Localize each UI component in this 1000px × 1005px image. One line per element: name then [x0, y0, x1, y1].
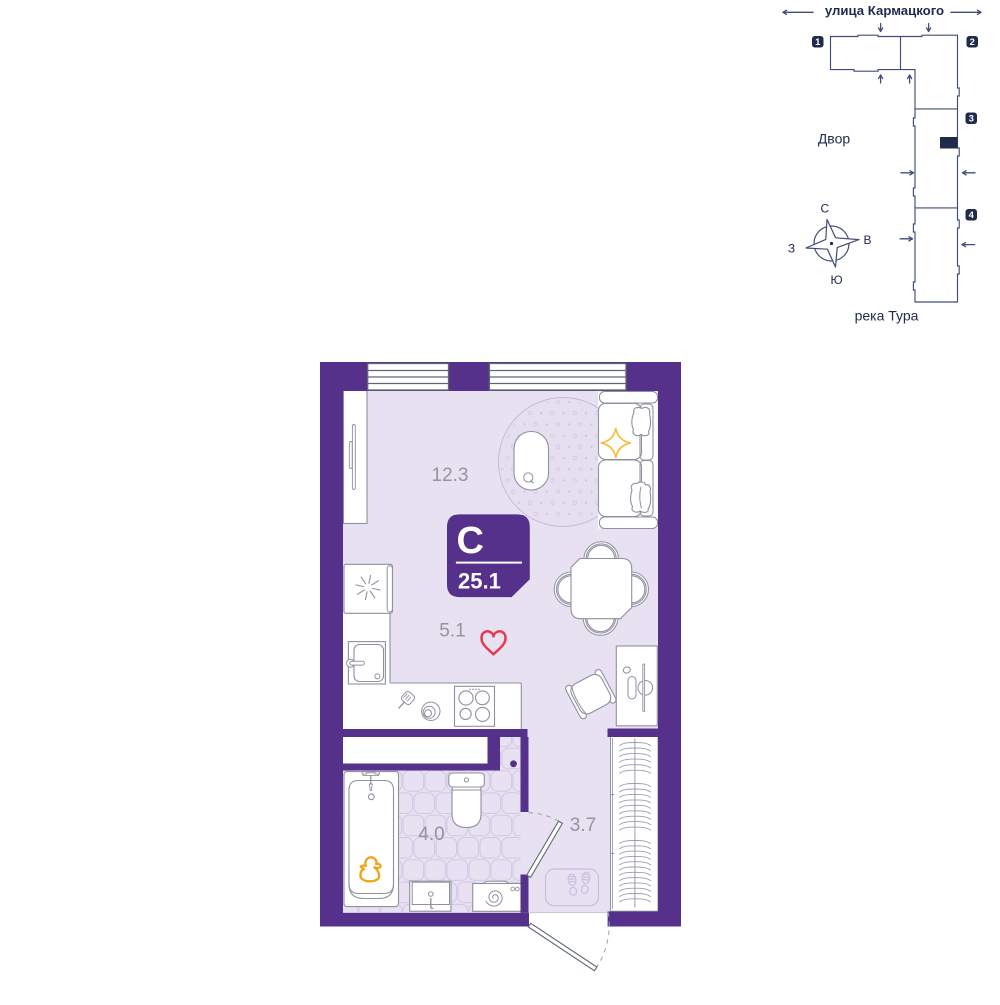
svg-text:1: 1 [815, 37, 821, 48]
svg-text:В: В [863, 233, 871, 247]
svg-text:12.3: 12.3 [432, 465, 469, 486]
svg-text:4.0: 4.0 [418, 824, 444, 845]
svg-text:С: С [820, 202, 829, 216]
svg-text:25.1: 25.1 [458, 569, 501, 594]
svg-text:3.7: 3.7 [570, 815, 596, 836]
svg-text:3: 3 [969, 114, 974, 125]
svg-text:Двор: Двор [818, 131, 851, 147]
svg-text:4: 4 [969, 210, 975, 221]
svg-text:С: С [457, 520, 484, 562]
svg-text:улица Кармацкого: улица Кармацкого [825, 3, 944, 18]
svg-text:З: З [788, 242, 795, 256]
svg-text:река Тура: река Тура [855, 308, 919, 324]
svg-text:5.1: 5.1 [439, 621, 465, 642]
svg-text:2: 2 [970, 37, 975, 48]
svg-text:Ю: Ю [831, 273, 843, 287]
